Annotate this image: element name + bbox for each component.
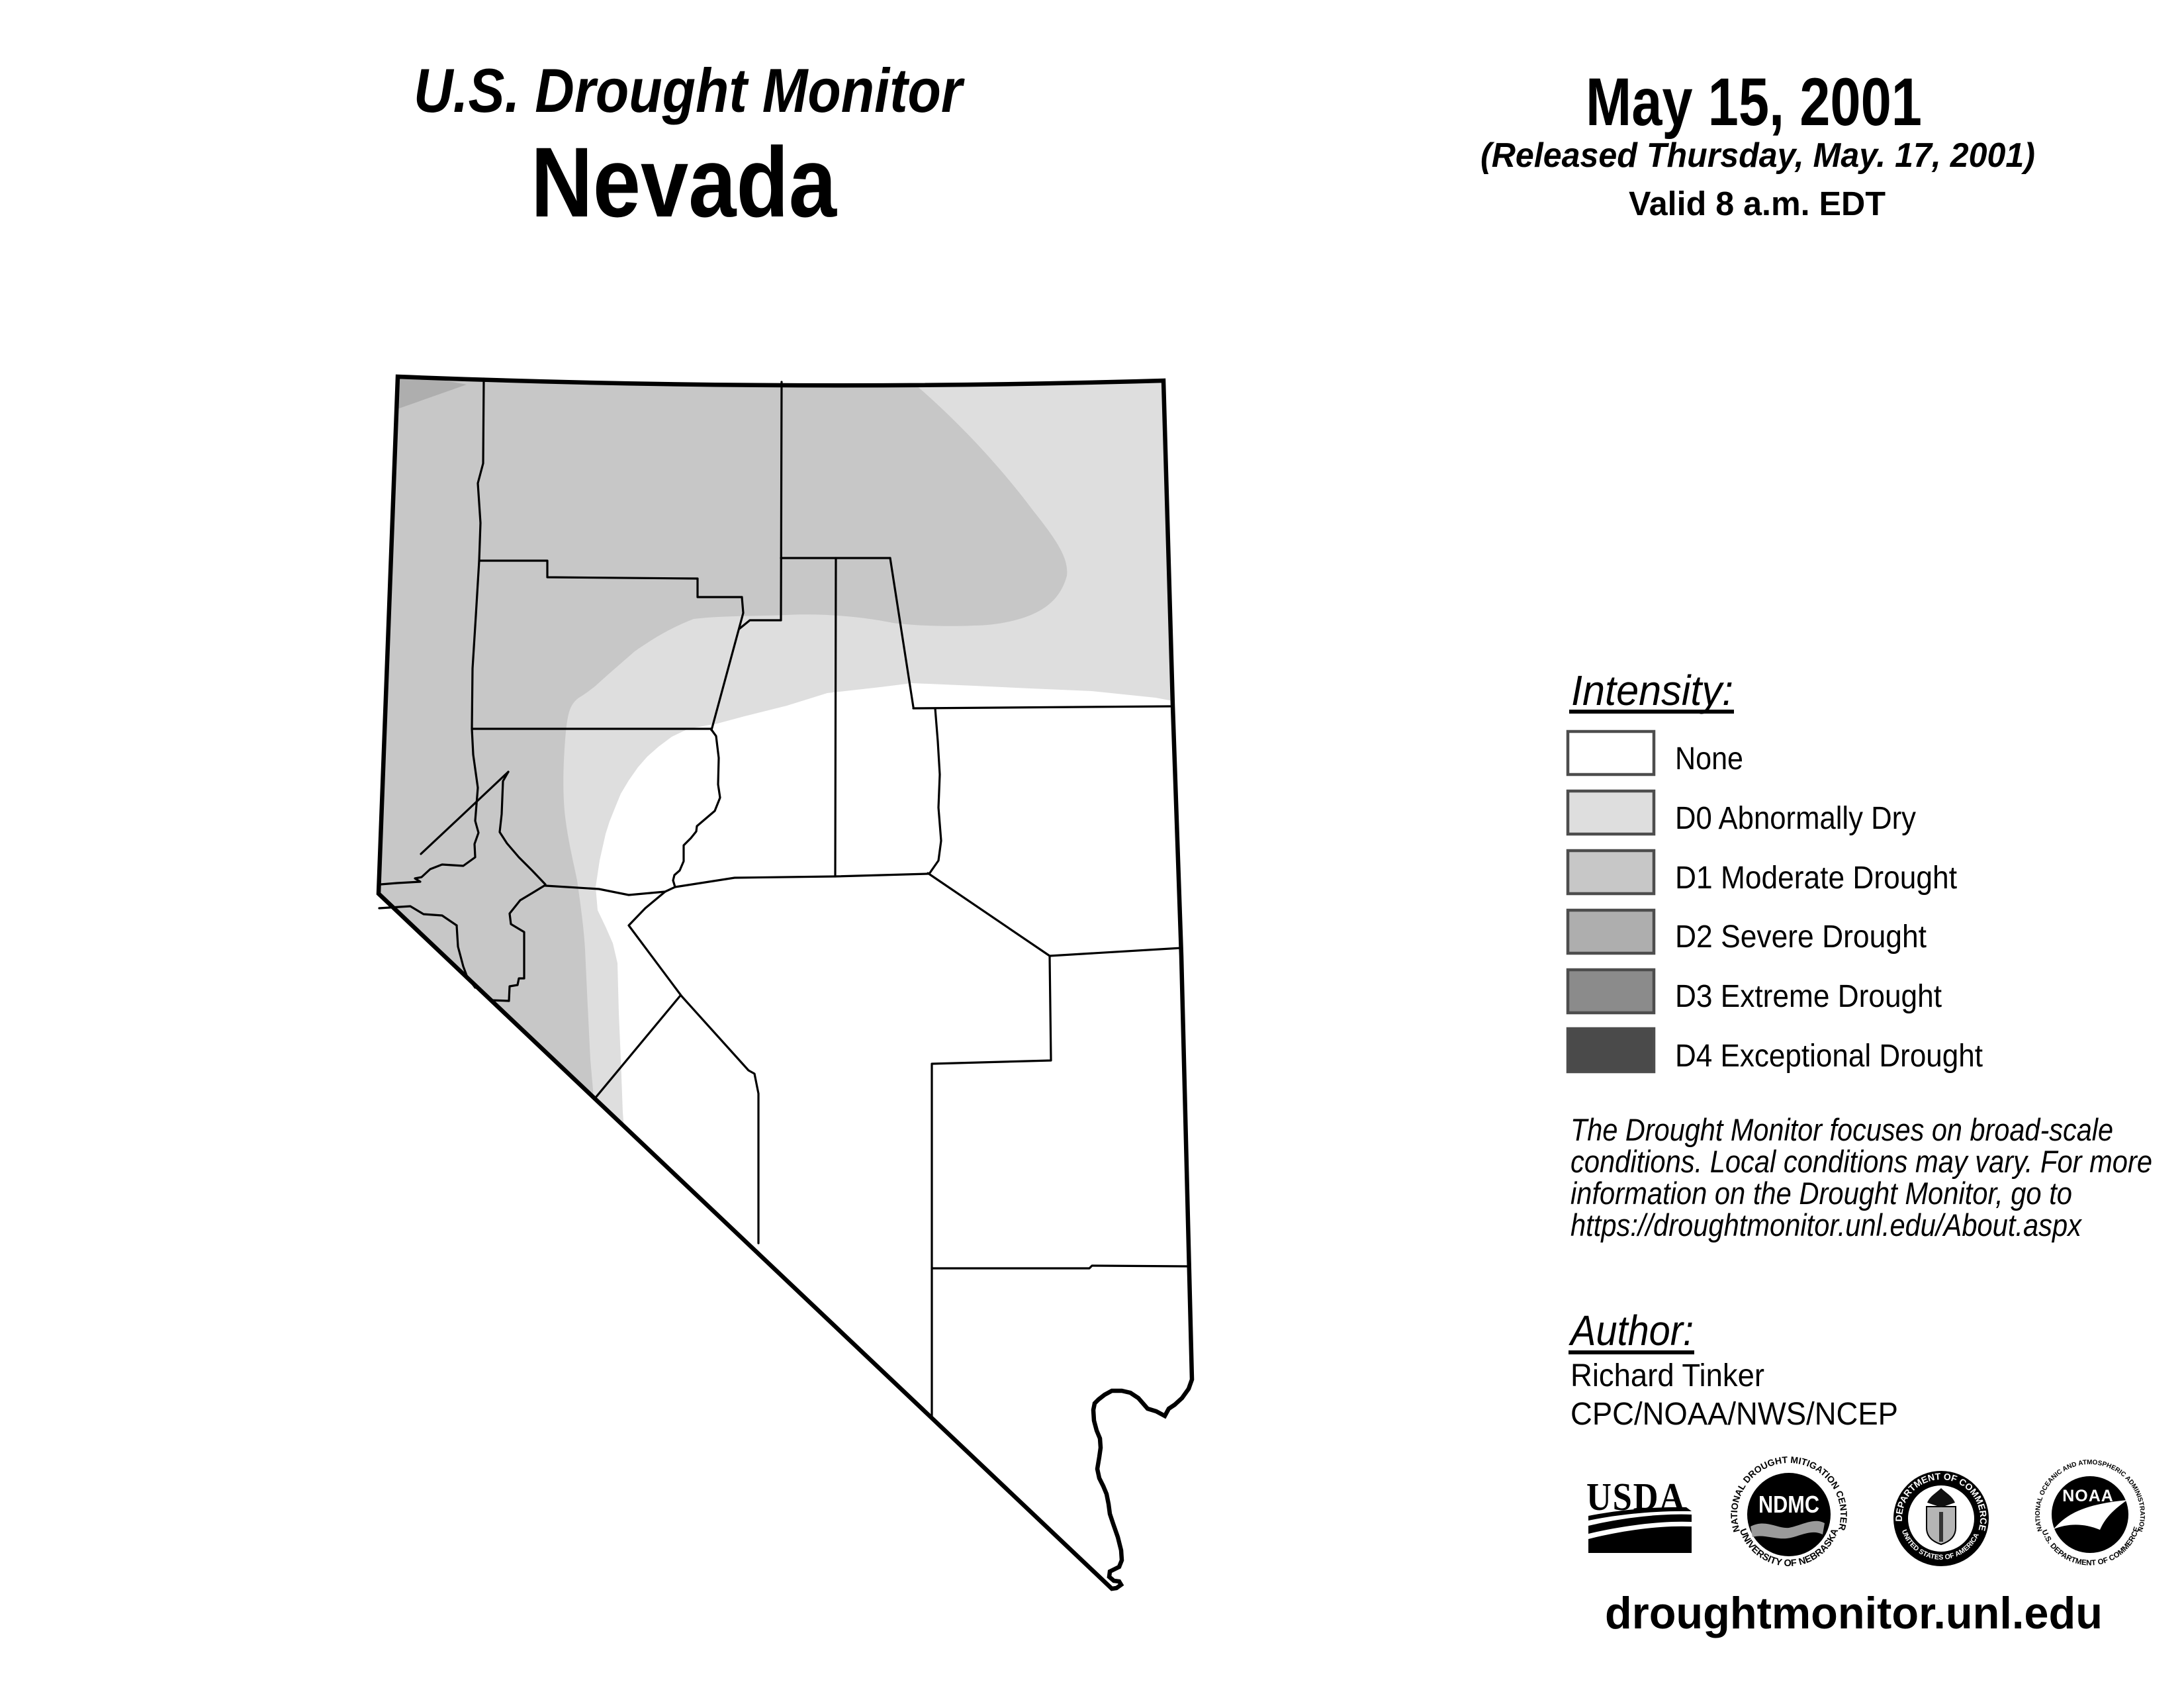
svg-text:Richard Tinker: Richard Tinker (1570, 1358, 1764, 1393)
svg-text:https://droughtmonitor.unl.edu: https://droughtmonitor.unl.edu/About.asp… (1570, 1207, 2082, 1243)
svg-text:May 15, 2001: May 15, 2001 (1586, 64, 1922, 140)
svg-text:D0 Abnormally Dry: D0 Abnormally Dry (1675, 801, 1916, 836)
svg-text:(Released Thursday, May. 17, 2: (Released Thursday, May. 17, 2001) (1480, 136, 2035, 175)
svg-text:NOAA: NOAA (2062, 1487, 2114, 1505)
svg-text:Author:: Author: (1568, 1307, 1694, 1354)
svg-text:D4 Exceptional Drought: D4 Exceptional Drought (1675, 1039, 1983, 1074)
svg-text:Intensity:: Intensity: (1571, 667, 1733, 714)
svg-text:CPC/NOAA/NWS/NCEP: CPC/NOAA/NWS/NCEP (1570, 1397, 1898, 1432)
svg-text:NDMC: NDMC (1758, 1491, 1819, 1518)
svg-text:conditions. Local conditions m: conditions. Local conditions may vary. F… (1570, 1144, 2152, 1179)
svg-text:D2 Severe Drought: D2 Severe Drought (1675, 919, 1927, 955)
svg-text:D1 Moderate Drought: D1 Moderate Drought (1675, 861, 1957, 896)
svg-text:The Drought Monitor focuses on: The Drought Monitor focuses on broad-sca… (1570, 1112, 2113, 1147)
svg-text:droughtmonitor.unl.edu: droughtmonitor.unl.edu (1605, 1588, 2103, 1638)
svg-text:D3 Extreme Drought: D3 Extreme Drought (1675, 979, 1942, 1014)
svg-text:None: None (1675, 741, 1743, 776)
svg-text:Nevada: Nevada (531, 126, 837, 238)
svg-text:U.S. Drought Monitor: U.S. Drought Monitor (414, 56, 965, 125)
svg-text:information on the Drought Mon: information on the Drought Monitor, go t… (1570, 1176, 2072, 1211)
svg-text:Valid 8 a.m. EDT: Valid 8 a.m. EDT (1629, 185, 1886, 222)
